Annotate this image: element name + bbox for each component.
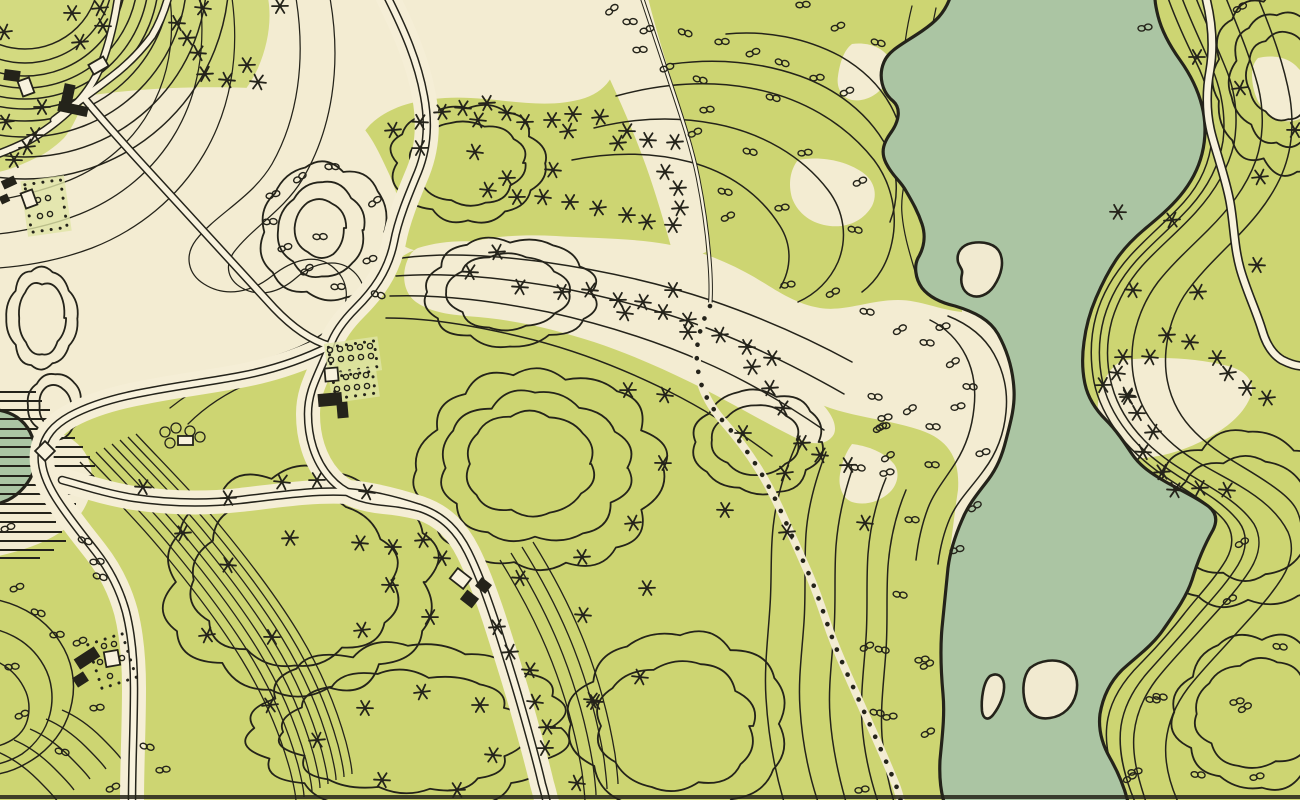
crown-tree-icon — [165, 438, 175, 448]
building-solid — [336, 402, 348, 419]
building-open — [104, 650, 120, 667]
crown-tree-icon — [171, 423, 181, 433]
building-open — [178, 436, 193, 445]
map-canvas — [0, 0, 1300, 800]
crown-tree-icon — [195, 432, 205, 442]
crown-tree-icon — [185, 426, 195, 436]
building-solid — [3, 69, 20, 82]
building-open — [324, 367, 338, 381]
topographic-map — [0, 0, 1300, 800]
crown-tree-icon — [160, 427, 170, 437]
